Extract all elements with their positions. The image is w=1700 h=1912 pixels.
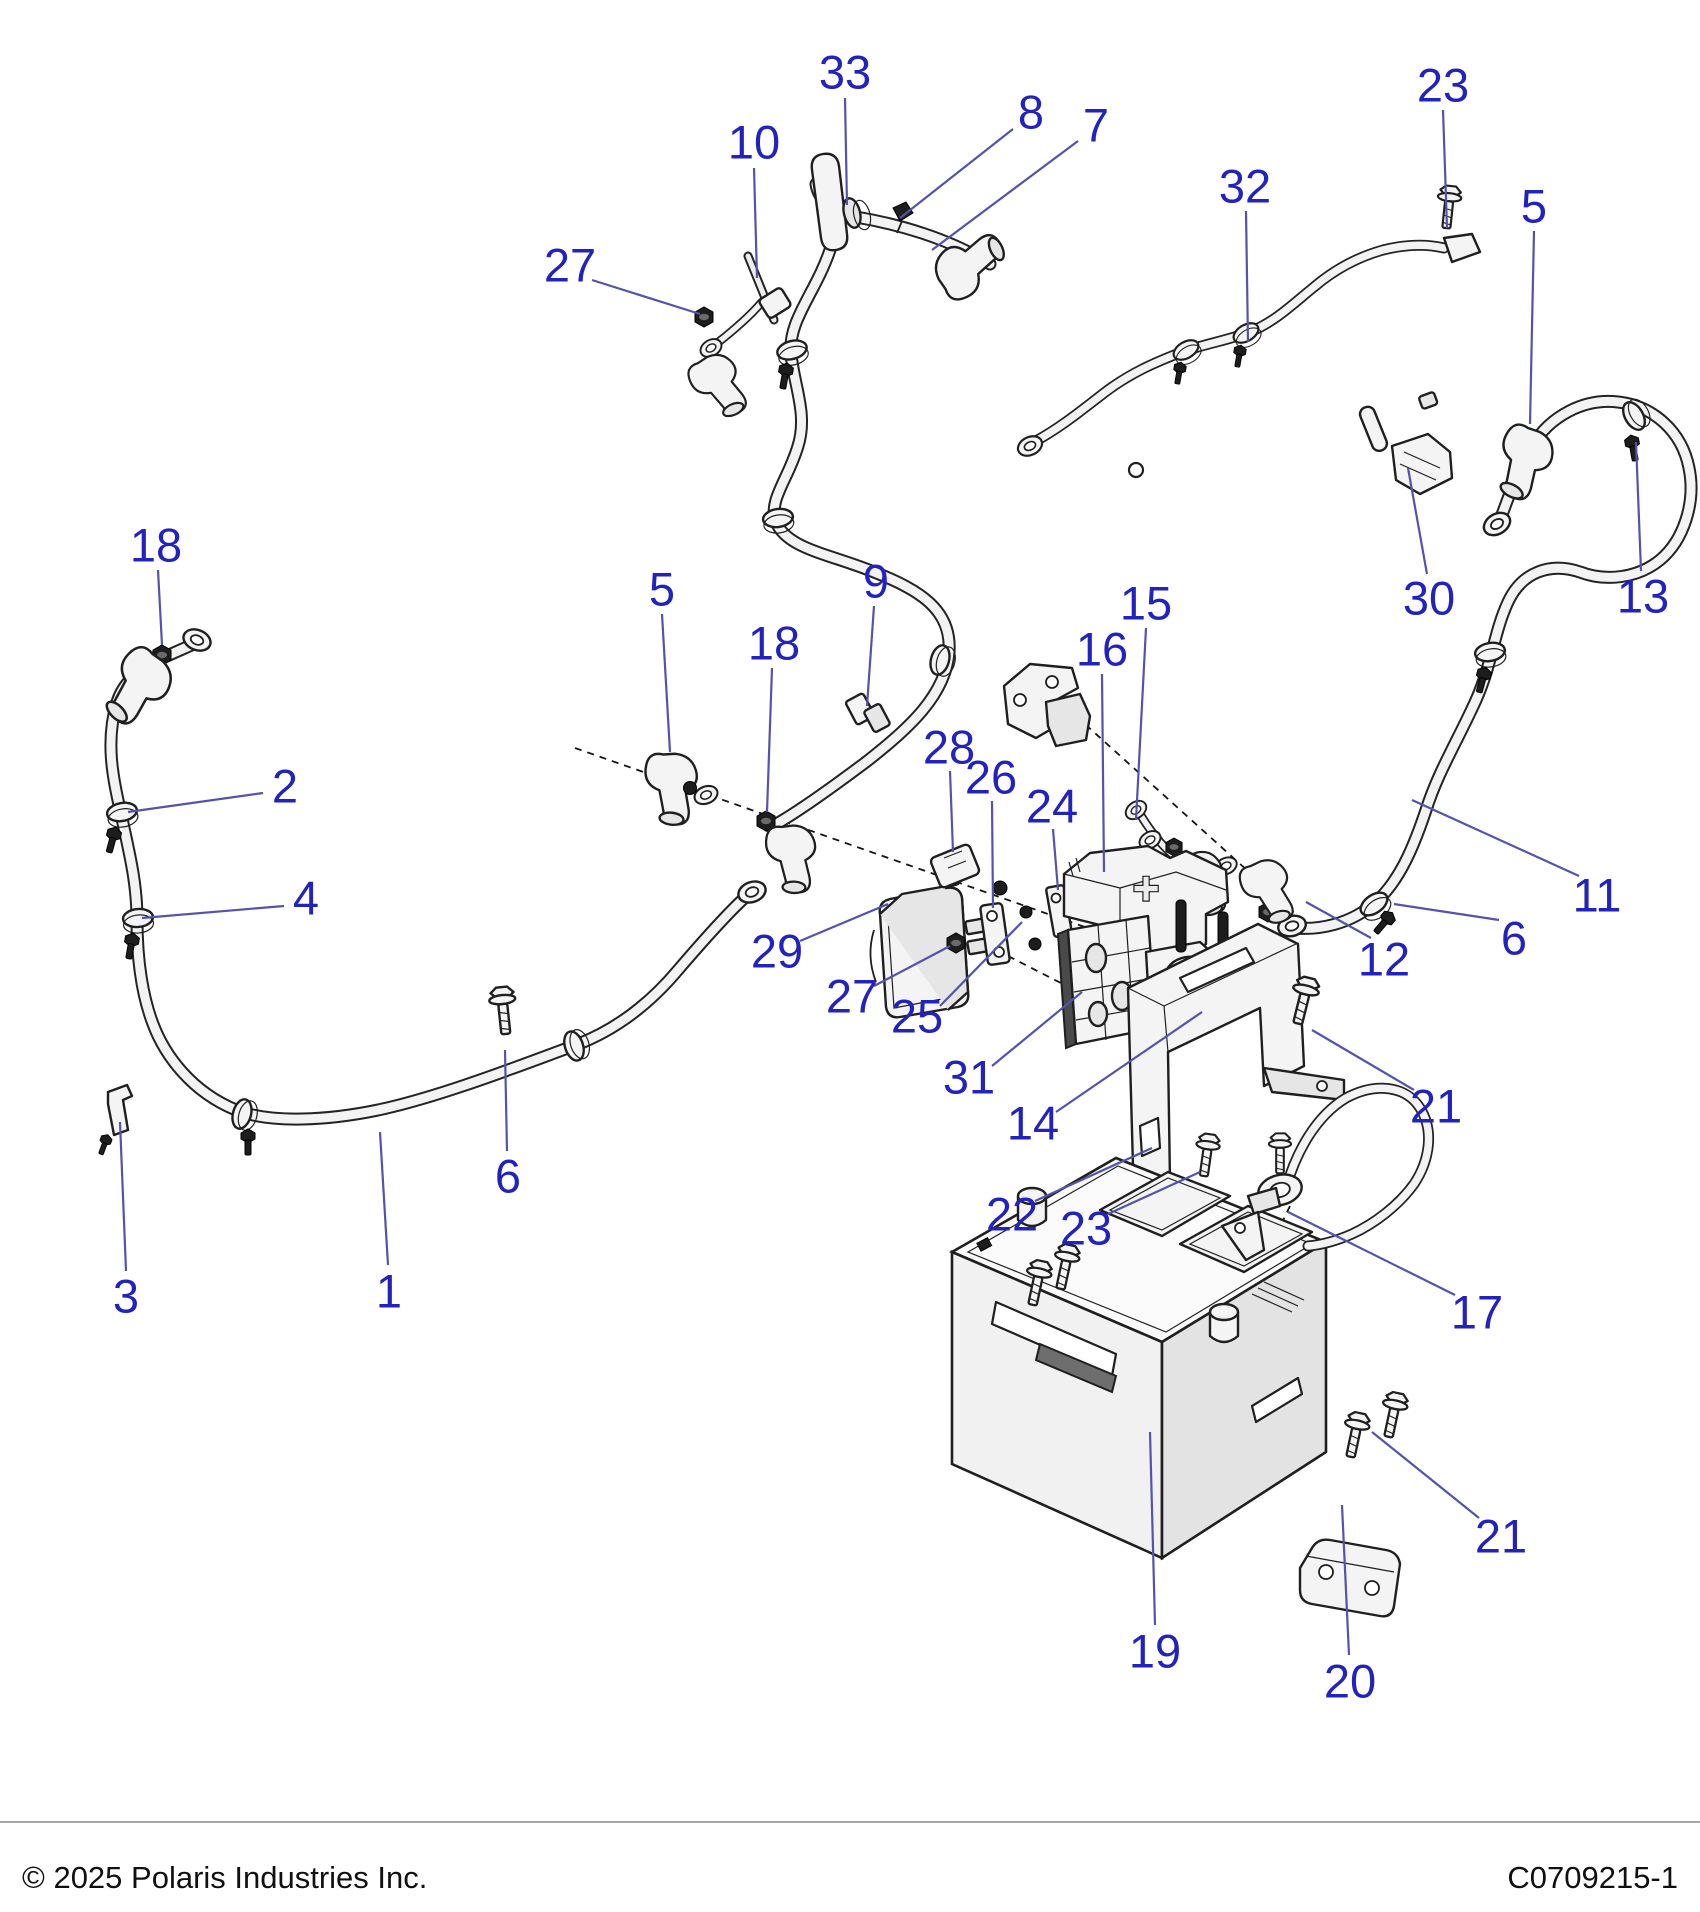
- terminal-nut-27: [947, 933, 965, 953]
- washer: [1129, 463, 1143, 477]
- callout-30-14: 30: [1403, 572, 1455, 625]
- callout-3-33: 3: [113, 1270, 139, 1323]
- leader-line-15-12: [1136, 628, 1146, 820]
- bracket-hole: [1140, 1118, 1160, 1156]
- callout-6-34: 6: [495, 1150, 521, 1203]
- positive-battery-cable-17: [1222, 1088, 1429, 1260]
- callout-23-5: 23: [1417, 59, 1469, 112]
- terminal-boot: [684, 348, 753, 425]
- callout-17-32: 17: [1451, 1286, 1503, 1339]
- callout-10-1: 10: [728, 116, 780, 169]
- leader-line-9-10: [867, 606, 874, 706]
- clamp-bolt-6: [488, 986, 519, 1035]
- callout-21-29: 21: [1410, 1080, 1462, 1133]
- callout-18-11: 18: [748, 617, 800, 670]
- leader-line-29-21: [800, 904, 888, 941]
- terminal-boot: [764, 825, 816, 894]
- callout-16-13: 16: [1076, 623, 1128, 676]
- callout-26-17: 26: [965, 751, 1017, 804]
- flange-bolt-23: [1435, 185, 1463, 230]
- callout-24-18: 24: [1026, 780, 1078, 833]
- callout-7-3: 7: [1083, 99, 1109, 152]
- leader-line-27-4: [592, 280, 700, 314]
- callout-12-26: 12: [1358, 933, 1410, 986]
- callout-21-38: 21: [1475, 1510, 1527, 1563]
- flange-bolt-23: [1192, 1133, 1221, 1178]
- leader-line-18-8: [158, 570, 162, 645]
- connector-30: [1358, 392, 1452, 494]
- leader-line-3-33: [120, 1122, 126, 1271]
- callout-9-10: 9: [863, 555, 889, 608]
- callout-29-21: 29: [751, 925, 803, 978]
- jumper-lead-10: [697, 256, 792, 361]
- leader-line-28-16: [950, 771, 953, 852]
- callout-5-9: 5: [649, 563, 675, 616]
- callout-27-4: 27: [544, 239, 596, 292]
- callout-14-25: 14: [1007, 1097, 1059, 1150]
- parts-diagram-page: +: [0, 0, 1700, 1912]
- callout-19-36: 19: [1129, 1625, 1181, 1678]
- leader-line-16-13: [1102, 674, 1104, 872]
- leader-line-21-38: [1372, 1432, 1479, 1518]
- mount-bracket-20: [1300, 1540, 1400, 1617]
- leader-line-13-15: [1636, 442, 1641, 571]
- leader-line-4-20: [142, 906, 284, 918]
- leader-line-24-18: [1053, 829, 1058, 890]
- fuse-28: [930, 843, 1007, 895]
- callout-20-37: 20: [1324, 1655, 1376, 1708]
- callout-23-31: 23: [1060, 1202, 1112, 1255]
- callout-22-30: 22: [986, 1188, 1038, 1241]
- plus-symbol: +: [1133, 862, 1160, 914]
- washer: [684, 782, 697, 795]
- callout-27-22: 27: [826, 970, 878, 1023]
- callout-5-7: 5: [1521, 180, 1547, 233]
- relay-bracket: [1004, 664, 1090, 746]
- callout-32-6: 32: [1219, 160, 1271, 213]
- leader-line-8-2: [900, 129, 1013, 218]
- bracket-foot: [1264, 1068, 1344, 1100]
- callout-1-35: 1: [376, 1265, 402, 1318]
- callout-11-28: 11: [1573, 869, 1622, 922]
- leader-line-18-11: [767, 668, 772, 812]
- rivet-25: [1020, 906, 1032, 918]
- leader-line-26-17: [992, 801, 993, 908]
- flange-bolt-21: [1376, 1390, 1409, 1439]
- leader-line-32-6: [1246, 211, 1248, 342]
- callout-layer: 3310872723325185918151630132826242429272…: [113, 46, 1669, 1708]
- callout-2-19: 2: [272, 760, 298, 813]
- leader-line-1-35: [380, 1132, 388, 1265]
- callout-4-20: 4: [293, 872, 319, 925]
- callout-8-2: 8: [1018, 86, 1044, 139]
- leader-line-33-0: [845, 98, 847, 205]
- clamp-stud: [241, 1129, 255, 1155]
- rear-battery-cable-11: [1259, 396, 1691, 940]
- copyright-text: © 2025 Polaris Industries Inc.: [22, 1860, 427, 1895]
- harness-junction: [812, 154, 848, 251]
- leader-line-5-7: [1530, 231, 1534, 424]
- cable-end-bracket: [1444, 234, 1480, 262]
- callout-31-24: 31: [943, 1051, 995, 1104]
- callout-33-0: 33: [819, 46, 871, 99]
- callout-18-8: 18: [130, 519, 182, 572]
- document-code: C0709215-1: [1507, 1860, 1678, 1895]
- fuse-holder-26: [980, 903, 1010, 965]
- callout-6-27: 6: [1501, 912, 1527, 965]
- battery-post-positive: [1210, 1304, 1238, 1342]
- callout-13-15: 13: [1617, 570, 1669, 623]
- callout-25-23: 25: [891, 990, 943, 1043]
- leader-line-2-19: [128, 793, 263, 812]
- leader-line-7-3: [932, 141, 1078, 250]
- leader-line-5-9: [662, 614, 670, 752]
- parts-diagram-canvas: +: [0, 0, 1700, 1912]
- mount-clip-3: [96, 1085, 132, 1156]
- flange-bolt-21: [1338, 1410, 1371, 1459]
- terminal-nut-27: [695, 307, 713, 327]
- rivet-25: [1029, 938, 1041, 950]
- leader-line-6-27: [1394, 904, 1499, 920]
- leader-line-11-28: [1412, 800, 1579, 876]
